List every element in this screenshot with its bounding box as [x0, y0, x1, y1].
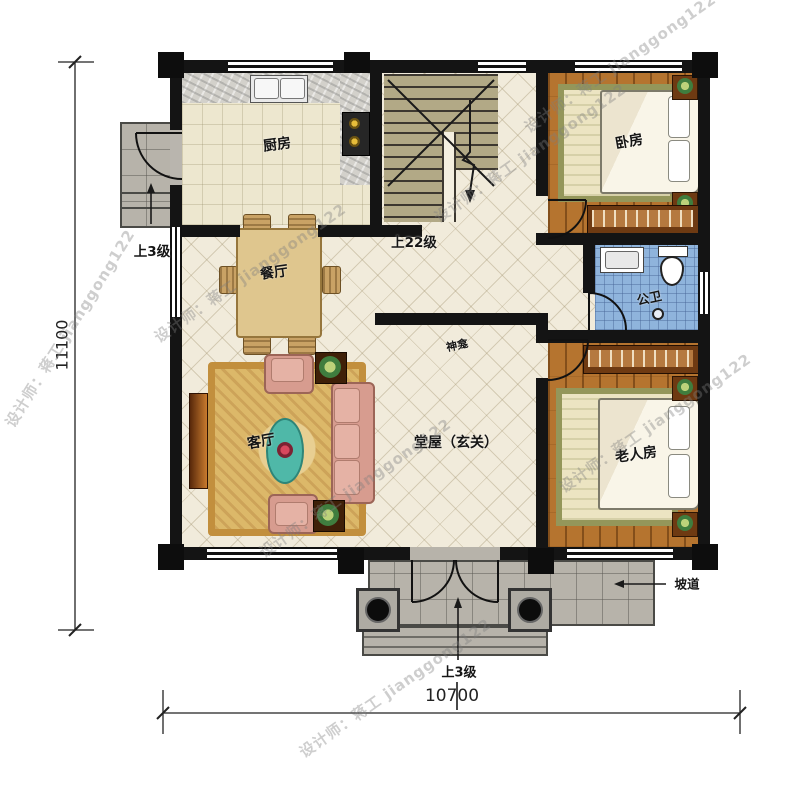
corner-pillar [692, 544, 718, 570]
pillar-top-mid [344, 52, 370, 73]
nightstand-plant [677, 379, 693, 395]
tv-cabinet [189, 393, 208, 489]
window [567, 547, 673, 560]
side-door-opening [170, 130, 182, 185]
pillar-entrance-left [338, 548, 364, 574]
stair-divider [442, 132, 456, 222]
window [170, 227, 182, 317]
floor-drain [652, 308, 664, 320]
window [575, 60, 682, 73]
sofa-cushion [334, 460, 360, 495]
coffee-table-flowers [277, 442, 293, 458]
window [207, 547, 337, 560]
porch-column [517, 597, 543, 623]
label-stairs: 上22级 [391, 231, 437, 251]
dim-tick [734, 707, 746, 719]
label-hall: 堂屋（玄关） [414, 432, 498, 452]
dimension-height: 11100 [53, 320, 72, 371]
wall-elder-left [536, 378, 548, 547]
bathroom-sink-basin [605, 251, 639, 269]
window [228, 60, 333, 73]
stair-flight-right [456, 132, 498, 170]
corner-pillar [158, 544, 184, 570]
dining-table [236, 228, 322, 338]
wall-bathroom-left [583, 245, 595, 293]
bedroom-pillow [668, 96, 690, 138]
label-front-steps: 上3级 [441, 662, 476, 681]
corner-pillar [692, 52, 718, 78]
side-table-plant [319, 356, 341, 378]
wall-kitchen-south [182, 225, 240, 237]
armchair-cushion [271, 358, 304, 382]
label-side-steps: 上3级 [134, 240, 170, 260]
dining-chair [288, 336, 316, 355]
wall-shrine [375, 313, 540, 325]
label-dining: 餐厅 [259, 260, 290, 284]
bedroom-pillow [668, 140, 690, 182]
floor-plan: 厨房 餐厅 卧房 公卫 老人房 客厅 堂屋（玄关） 神龛 上22级 上3级 上3… [0, 0, 800, 800]
dim-tick [69, 56, 81, 68]
label-kitchen: 厨房 [262, 132, 293, 156]
elder-wardrobe-rail [588, 350, 693, 367]
label-ramp: 坡道 [674, 574, 699, 593]
armchair-cushion [275, 502, 308, 526]
window [478, 60, 526, 73]
dim-tick [157, 707, 169, 719]
sofa-cushion [334, 424, 360, 459]
stair-flight-left [384, 132, 442, 222]
nightstand-plant [677, 515, 693, 531]
wall-kitchen-south [318, 225, 382, 237]
elder-pillow [668, 454, 690, 498]
bedroom-wardrobe-rail [592, 210, 693, 227]
wall-bathroom-south [536, 330, 700, 343]
corner-pillar [158, 52, 184, 78]
side-table-plant [317, 504, 339, 526]
dining-chair [243, 336, 271, 355]
nightstand-plant [677, 78, 693, 94]
wall-kitchen-right [370, 73, 382, 237]
sofa-cushion [334, 388, 360, 423]
elder-pillow [668, 406, 690, 450]
window [698, 272, 710, 314]
stair-flight-top [384, 74, 498, 132]
dimension-width: 10700 [425, 686, 479, 706]
porch-column [365, 597, 391, 623]
wall-bedroom-left [536, 73, 548, 196]
kitchen-sink-bowl [280, 78, 305, 99]
entrance-opening [410, 547, 500, 560]
dim-tick [69, 624, 81, 636]
kitchen-sink-bowl [254, 78, 279, 99]
wall-bedroom-south [536, 233, 700, 245]
dining-chair [322, 266, 341, 294]
stove-burner [349, 118, 360, 129]
stove-burner [349, 136, 360, 147]
pillar-entrance-right [528, 548, 554, 574]
